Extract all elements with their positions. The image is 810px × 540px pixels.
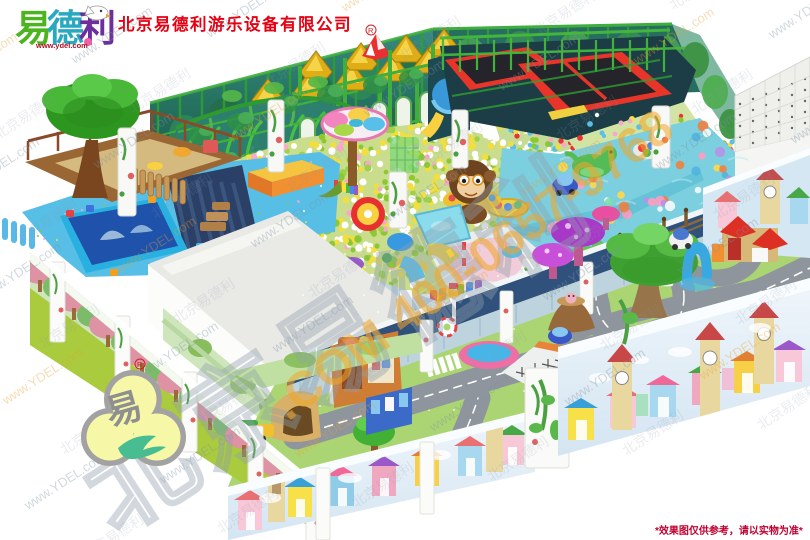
svg-text:www.YDEL.com: www.YDEL.com (338, 0, 425, 15)
svg-text:R: R (137, 360, 143, 369)
svg-text:R: R (368, 26, 374, 35)
svg-text:*效果图仅供参考，请以实物为准*: *效果图仅供参考，请以实物为准* (655, 524, 803, 537)
svg-text:www.YDEL.com: www.YDEL.com (765, 0, 810, 42)
svg-text:www.YDEL.com: www.YDEL.com (0, 344, 86, 408)
svg-text:www.YDEL.com: www.YDEL.com (0, 29, 20, 93)
